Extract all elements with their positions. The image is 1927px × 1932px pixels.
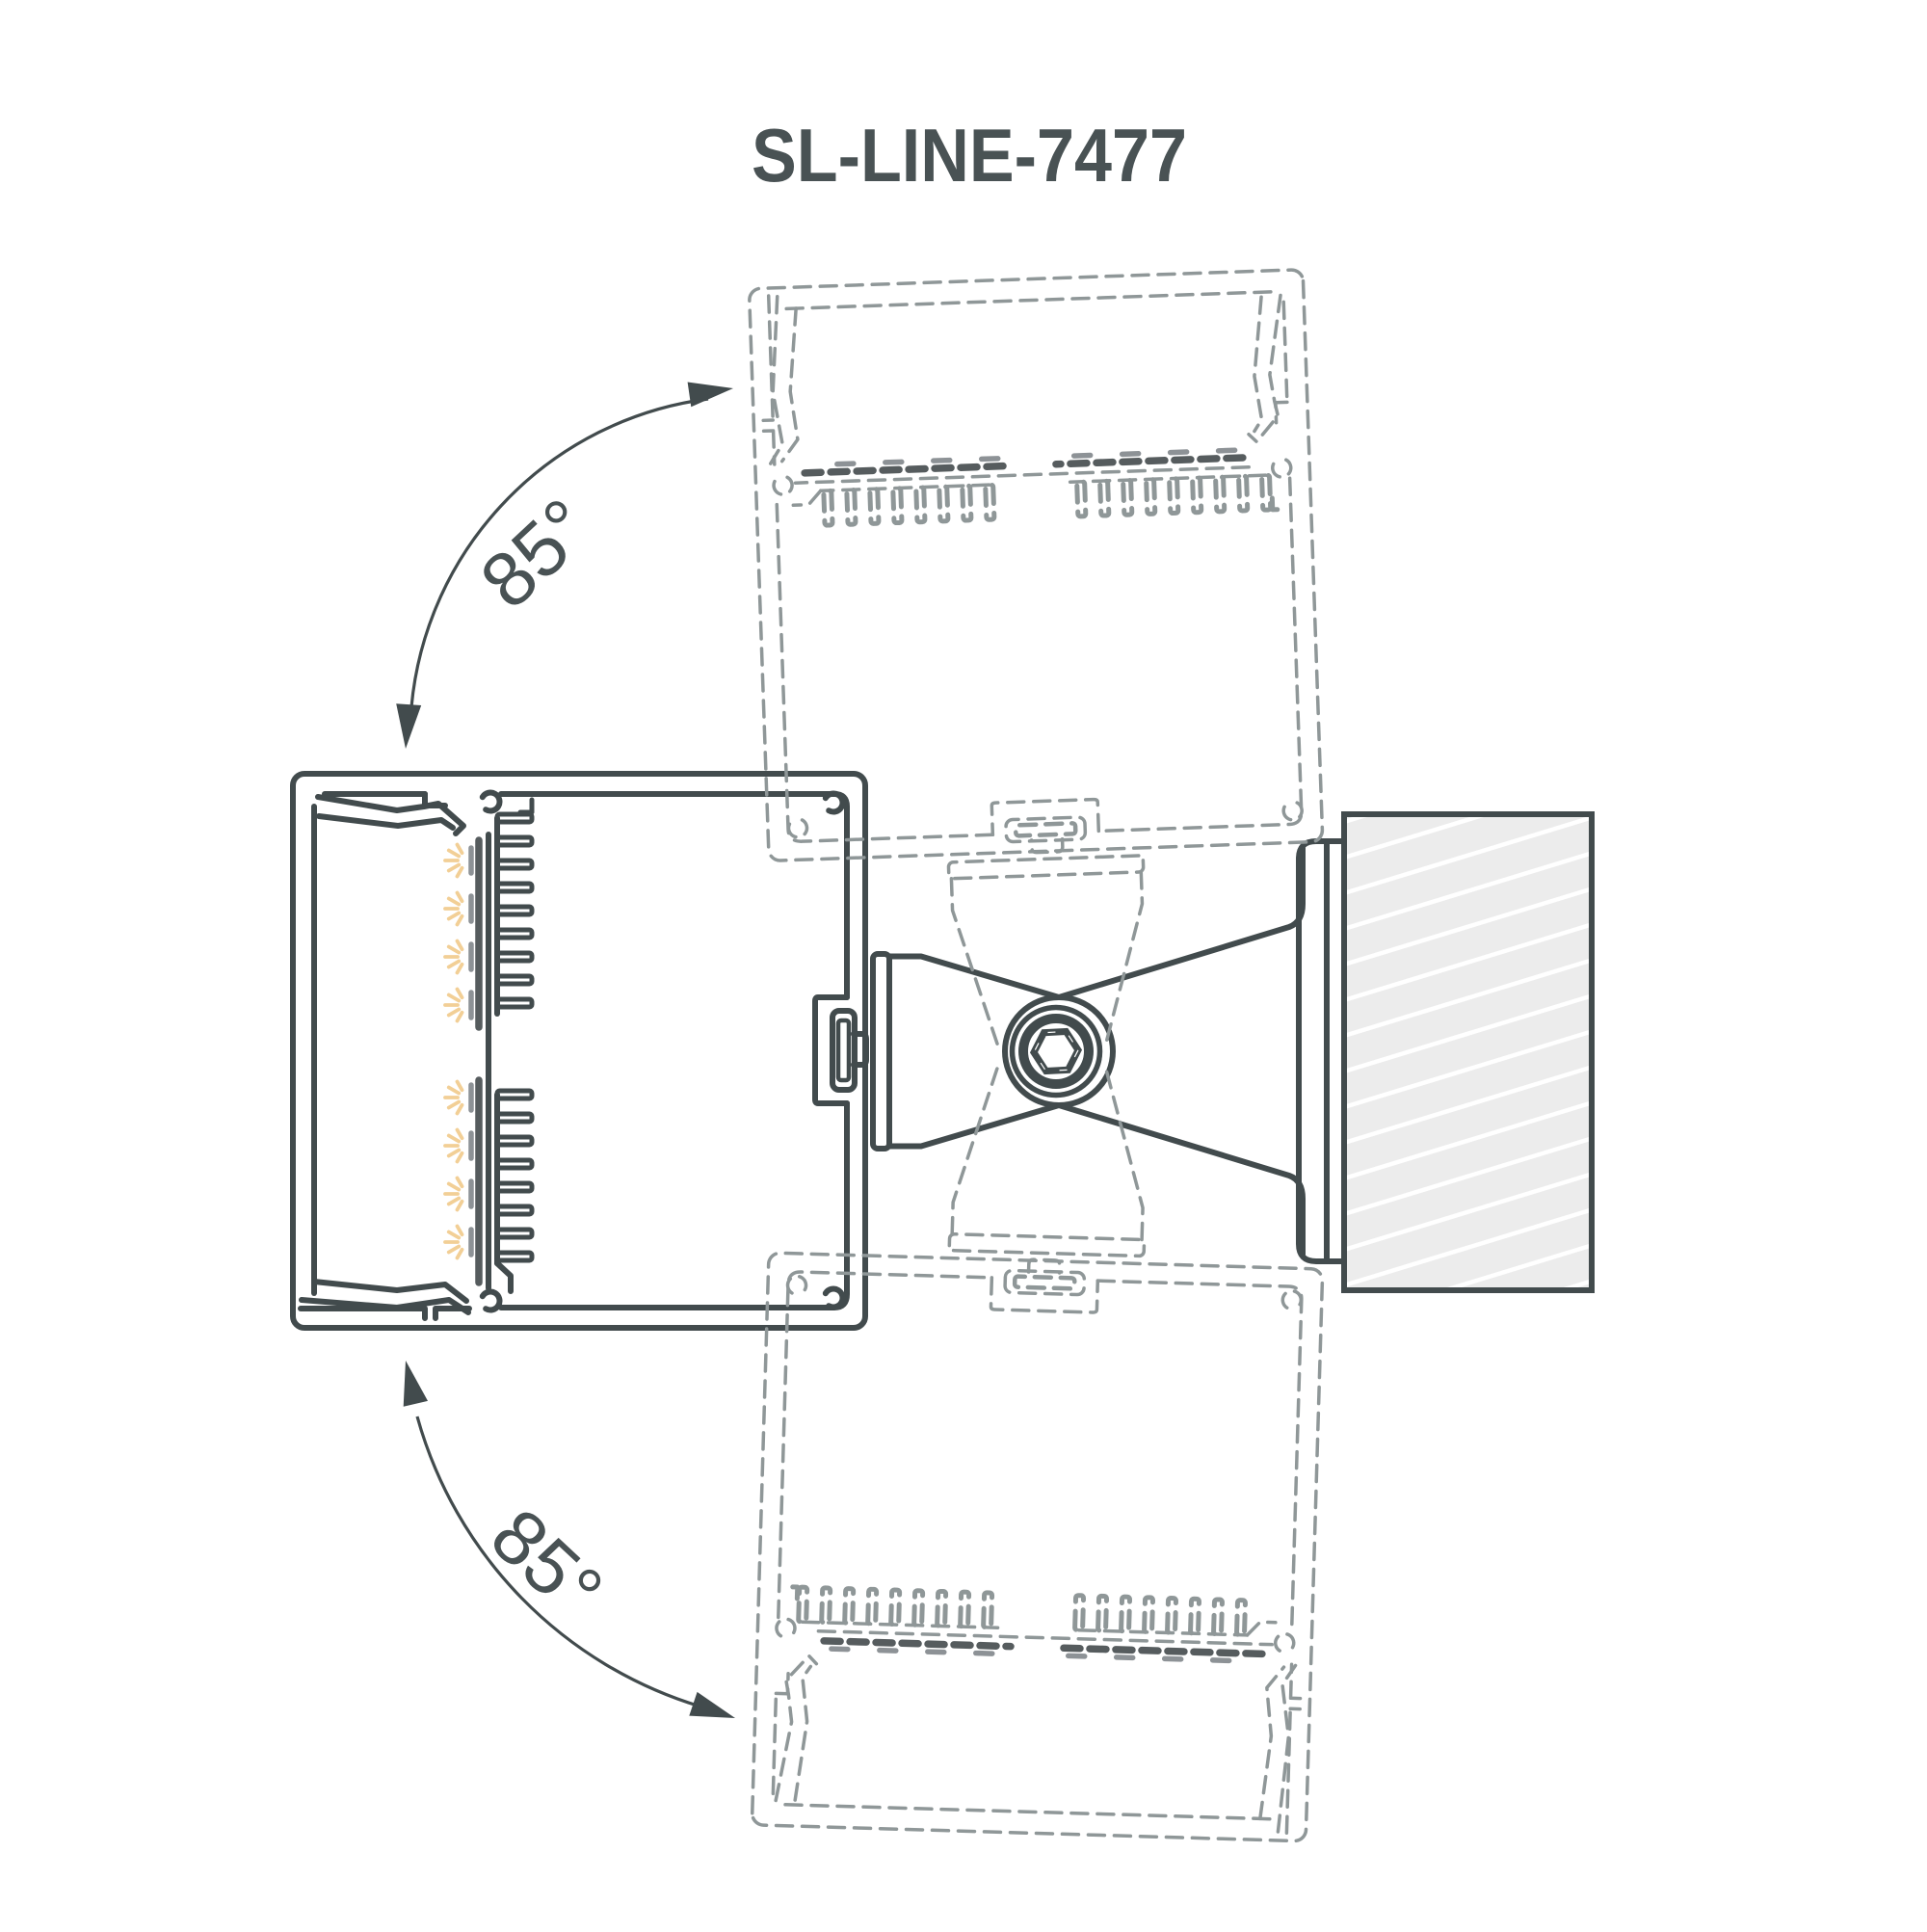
svg-text:SL-LINE-7477: SL-LINE-7477 xyxy=(752,113,1187,198)
